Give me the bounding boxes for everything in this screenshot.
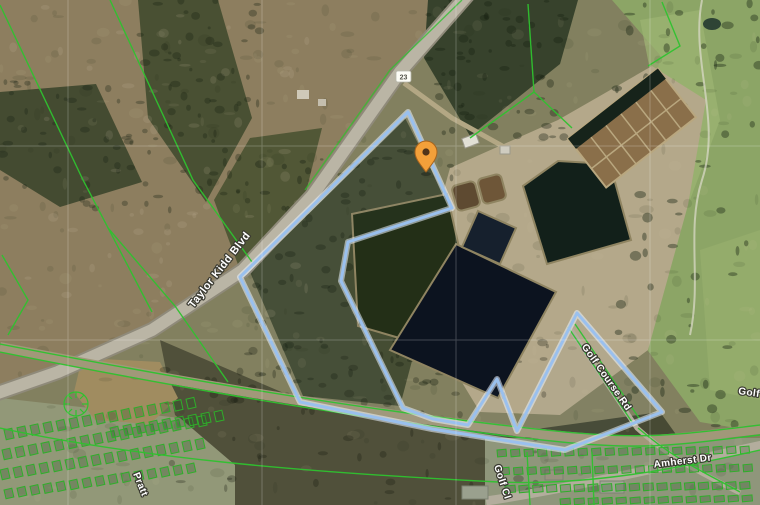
house-parcel: [43, 422, 53, 434]
house-parcel: [605, 448, 615, 456]
satellite-map-viewport[interactable]: Taylor Kidd Blvd Golf Course Rd Amherst …: [0, 0, 760, 505]
house-parcel: [160, 402, 170, 414]
house-parcel: [65, 458, 75, 470]
house-parcel: [130, 448, 140, 460]
house-parcel: [2, 448, 12, 460]
house-parcel: [578, 448, 588, 456]
house-parcel: [560, 498, 570, 505]
house-parcel: [30, 485, 40, 496]
house-parcel: [15, 446, 25, 458]
house-parcel: [594, 466, 604, 474]
house-parcel: [162, 418, 172, 430]
house-parcel: [195, 438, 205, 450]
house-parcel: [26, 464, 36, 476]
lagoon-brown-cell-2: [477, 173, 507, 204]
house-parcel: [622, 466, 632, 474]
house-parcel: [4, 488, 14, 499]
house-parcel: [673, 447, 683, 455]
house-parcel: [630, 497, 640, 504]
house-parcel: [173, 465, 183, 476]
house-parcel: [497, 449, 507, 457]
house-parcel: [149, 420, 159, 432]
plant-building: [500, 146, 510, 154]
house-parcel: [686, 496, 696, 503]
house-parcel: [615, 483, 626, 491]
house-parcel: [643, 483, 654, 491]
house-parcel: [632, 447, 642, 455]
house-parcel: [581, 466, 591, 474]
house-parcel: [214, 410, 224, 422]
house-parcel: [188, 414, 198, 426]
house-parcel: [82, 477, 92, 488]
house-parcel: [602, 497, 612, 504]
house-parcel: [110, 426, 120, 438]
house-parcel: [644, 497, 654, 504]
house-parcel: [560, 484, 571, 492]
house-parcel: [740, 481, 751, 489]
house-parcel: [82, 415, 92, 427]
house-parcel: [143, 446, 153, 458]
house-parcel: [742, 495, 752, 502]
house-parcel: [69, 479, 79, 490]
house-parcel: [713, 446, 723, 454]
house-parcel: [147, 404, 157, 416]
house-parcel: [510, 449, 520, 457]
house-parcel: [186, 397, 196, 409]
house-parcel: [619, 448, 629, 456]
house-parcel: [169, 442, 179, 454]
rural-building: [297, 90, 309, 99]
house-parcel: [574, 498, 584, 505]
house-parcel: [43, 483, 53, 494]
house-parcel: [513, 467, 523, 475]
house-parcel: [703, 465, 713, 473]
house-parcel: [69, 417, 79, 429]
house-parcel: [0, 468, 10, 480]
house-parcel: [54, 439, 64, 451]
house-parcel: [672, 496, 682, 503]
house-parcel: [712, 482, 723, 490]
house-parcel: [108, 411, 118, 423]
house-parcel: [56, 419, 66, 431]
house-parcel: [30, 424, 40, 436]
house-parcel: [17, 486, 27, 497]
golf-pond: [703, 18, 721, 30]
rural-building: [318, 99, 326, 106]
house-parcel: [78, 456, 88, 468]
map-canvas: Taylor Kidd Blvd Golf Course Rd Amherst …: [0, 0, 760, 505]
house-parcel: [574, 484, 585, 492]
house-parcel: [608, 466, 618, 474]
house-parcel: [56, 481, 66, 492]
large-roof: [462, 486, 488, 499]
house-parcel: [728, 495, 738, 502]
house-parcel: [546, 484, 557, 492]
route-shield-number: 23: [400, 75, 408, 82]
house-parcel: [671, 483, 682, 491]
house-parcel: [117, 450, 127, 462]
house-parcel: [91, 454, 101, 466]
house-parcel: [136, 422, 146, 434]
house-parcel: [201, 412, 211, 424]
house-parcel: [568, 466, 578, 474]
house-parcel: [160, 467, 170, 478]
house-parcel: [533, 485, 544, 493]
house-parcel: [616, 497, 626, 504]
house-parcel: [175, 416, 185, 428]
house-parcel: [147, 468, 157, 479]
house-parcel: [716, 464, 726, 472]
house-parcel: [186, 463, 196, 474]
house-parcel: [52, 460, 62, 472]
house-parcel: [743, 464, 753, 472]
house-parcel: [698, 482, 709, 490]
house-parcel: [104, 452, 114, 464]
house-parcel: [657, 483, 668, 491]
house-parcel: [602, 484, 613, 492]
house-parcel: [134, 406, 144, 418]
house-parcel: [173, 400, 183, 412]
house-parcel: [629, 483, 640, 491]
house-parcel: [93, 433, 103, 445]
house-parcel: [729, 464, 739, 472]
house-parcel: [524, 449, 534, 457]
house-parcel: [714, 495, 724, 502]
house-parcel: [686, 447, 696, 455]
house-parcel: [726, 446, 736, 454]
house-parcel: [554, 467, 564, 475]
house-parcel: [13, 466, 23, 478]
house-parcel: [28, 444, 38, 456]
house-parcel: [39, 462, 49, 474]
house-parcel: [591, 448, 601, 456]
house-parcel: [700, 496, 710, 503]
house-parcel: [182, 440, 192, 452]
house-parcel: [519, 485, 530, 493]
house-parcel: [108, 474, 118, 485]
pin-center-dot: [422, 148, 429, 155]
house-parcel: [123, 424, 133, 436]
house-parcel: [95, 413, 105, 425]
route-shield: 23: [396, 71, 411, 82]
house-parcel: [658, 496, 668, 503]
house-parcel: [541, 467, 551, 475]
house-parcel: [121, 408, 131, 420]
house-parcel: [635, 465, 645, 473]
house-parcel: [41, 442, 51, 454]
house-parcel: [121, 472, 131, 483]
house-parcel: [684, 482, 695, 490]
house-parcel: [95, 476, 105, 487]
